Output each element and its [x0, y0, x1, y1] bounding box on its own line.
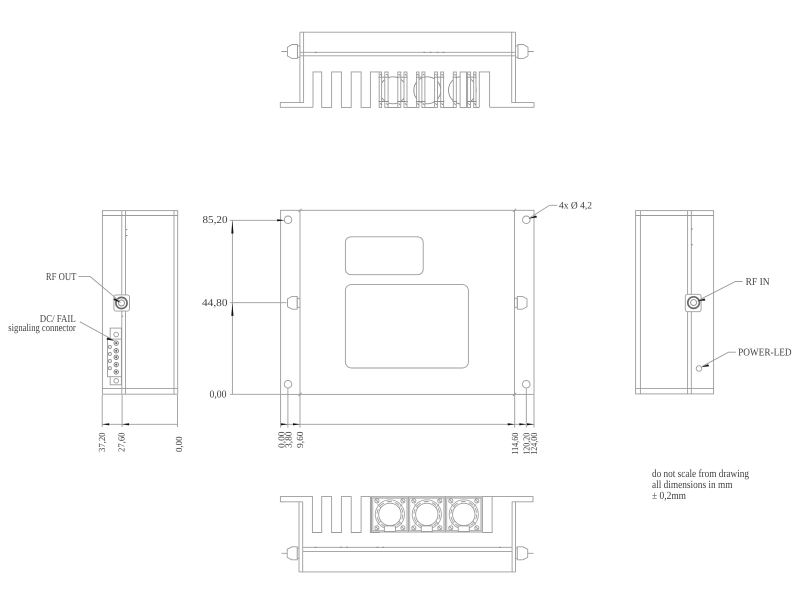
svg-text:POWER-LED: POWER-LED — [738, 348, 792, 359]
svg-text:signaling connector: signaling connector — [8, 323, 76, 334]
svg-text:37,20: 37,20 — [98, 432, 108, 452]
svg-text:4x Ø 4,2: 4x Ø 4,2 — [559, 201, 592, 212]
svg-text:85,20: 85,20 — [203, 215, 228, 226]
svg-text:124,00: 124,00 — [530, 432, 540, 454]
svg-text:114,60: 114,60 — [511, 432, 521, 454]
svg-text:± 0,2mm: ± 0,2mm — [652, 490, 686, 502]
svg-text:3,80: 3,80 — [285, 431, 295, 448]
svg-text:27,60: 27,60 — [118, 432, 128, 452]
svg-text:0,00: 0,00 — [175, 436, 185, 452]
svg-text:0,00: 0,00 — [210, 390, 227, 401]
svg-text:9,60: 9,60 — [296, 431, 306, 448]
svg-text:RF IN: RF IN — [746, 277, 770, 288]
svg-text:RF OUT: RF OUT — [46, 272, 77, 283]
svg-text:44,80: 44,80 — [202, 298, 228, 309]
